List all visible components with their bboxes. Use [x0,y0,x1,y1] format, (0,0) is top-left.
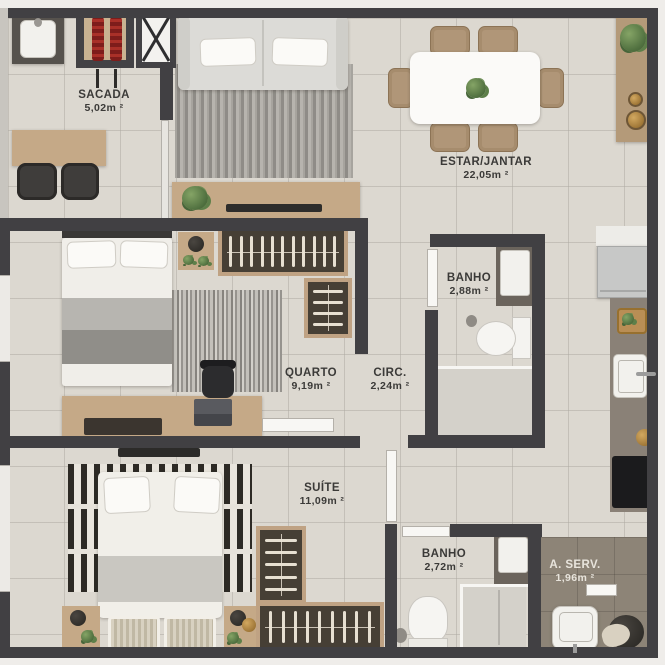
grill-skewers-icon [110,17,122,61]
room-area: 9,19m ² [292,380,331,393]
wall-top [8,8,658,18]
suite-blanket [98,556,222,602]
balcony-chair [61,163,99,200]
wall-living-quarto [8,218,368,231]
banho1-shower-glass [438,366,532,369]
desk-chair [202,366,234,398]
sofa-cushion [200,37,257,67]
window-quarto [0,275,10,362]
room-label-circ: CIRC. 2,24m ² [371,366,410,394]
room-label-sacada: SACADA 5,02m ² [78,88,130,116]
room-label-quarto: QUARTO 9,19m ² [285,366,337,394]
suite-tv-icon [118,448,200,457]
room-area: 22,05m ² [463,169,508,182]
sofa-seat-line [262,20,264,86]
room-area: 2,24m ² [371,380,410,393]
banho1-bin-icon [466,315,477,327]
tv-icon [226,204,322,212]
grill-handle-icon [96,69,99,88]
sliding-door-sacada [161,120,169,222]
suite-pillow [173,476,221,514]
wall-quarto-suite [8,436,360,448]
sofa-arm [336,16,348,90]
quarto-wardrobe [218,227,348,276]
banho2-shower-rod-icon [498,590,500,645]
duct-shaft [136,10,176,68]
grill-handle-icon [114,69,117,88]
suite-wardrobe-horizontal [256,602,384,652]
quarto-pillow [67,240,117,269]
room-name: BANHO [422,547,466,561]
door-banho1 [427,249,438,307]
quarto-pillow [120,240,169,269]
shower-floor-banho2 [463,586,526,647]
decor-bowl-icon [628,92,643,107]
balcony-faucet-icon [34,18,42,27]
wall-banho1-bottom [408,435,545,448]
banho2-shower-glass [460,584,463,648]
room-label-banho-1: BANHO 2,88m ² [447,271,491,299]
banho1-sink [500,250,530,296]
wall-circ-right [425,310,438,436]
wall-suite-banho2 [385,524,397,647]
wall-banho1-right [532,247,545,437]
wall-banho1-top [430,234,545,247]
room-name: SACADA [78,88,130,102]
suite-plant-icon [227,632,239,644]
wall-banho2-aserv [528,524,541,647]
room-label-banho-2: BANHO 2,72m ² [422,547,466,575]
wall-circ-left [355,218,368,354]
door-aserv [586,584,617,596]
sideboard-plant-icon [620,24,646,52]
room-area: 2,72m ² [424,561,463,574]
nightstand-plant-icon [183,255,194,265]
room-name: SUÍTE [304,481,340,495]
sofa-arm [178,16,190,90]
balcony-railing [0,8,8,218]
kitchen-sink-basin [618,360,644,393]
balcony-chair [17,163,57,200]
quarto-blanket-fold [62,330,172,364]
laundry-tank-basin [559,612,593,642]
shaft-x-icon [142,16,170,62]
wall-sacada-living [160,62,173,120]
room-area: 2,88m ² [449,285,488,298]
room-name: BANHO [447,271,491,285]
room-label-estar-jantar: ESTAR/JANTAR 22,05m ² [440,155,532,183]
grill-skewers-icon [92,17,104,61]
suite-bench [108,616,160,650]
wall-bottom [8,647,658,658]
decor-bowl-icon [626,110,646,130]
nightstand-plant-icon [198,256,209,266]
suite-plant-icon [81,630,94,643]
console-plant-icon [182,186,208,210]
banho1-toilet-bowl [476,321,516,356]
barbecue-grill [76,10,134,68]
kitchen-upper-cabinet [596,226,648,247]
herbs-icon [622,313,634,325]
table-centerpiece-icon [466,78,486,98]
laptop-icon [194,399,232,426]
quarto-side-closet [304,278,352,338]
balcony-table [12,130,106,166]
suite-wardrobe-vertical [256,526,306,604]
banho2-toilet-bowl [408,596,448,642]
suite-decor-icon [242,618,256,632]
banho2-sink [498,537,528,573]
door-suite [386,450,397,522]
banho2-shower-glass [460,584,530,587]
shower-floor-banho1 [438,368,532,435]
laundry-tap-icon [573,644,577,653]
floor-plan: SACADA 5,02m ² ESTAR/JANTAR 22,05m ² BAN… [0,0,665,665]
room-name: QUARTO [285,366,337,380]
dining-chair [430,122,470,152]
room-label-a-serv: A. SERV. 1,96m ² [549,558,600,586]
room-label-suite: SUÍTE 11,09m ² [300,481,345,509]
faucet-icon [636,372,656,376]
door-banho2 [402,526,450,537]
dining-chair [478,122,518,152]
suite-lamp-icon [70,610,86,626]
room-name: CIRC. [373,366,406,380]
room-area: 11,09m ² [300,495,345,508]
wall-right [647,8,658,658]
room-name: A. SERV. [549,558,600,572]
room-area: 1,96m ² [556,572,595,585]
desk-tray-icon [84,418,162,435]
nightstand-decor-icon [188,236,204,252]
room-name: ESTAR/JANTAR [440,155,532,169]
dining-chair [538,68,564,108]
cooktop [612,456,650,508]
suite-bench [164,616,216,650]
suite-pillow [103,476,151,514]
sofa-cushion [272,37,329,67]
window-suite [0,465,10,592]
fridge-door-line [600,290,646,292]
room-area: 5,02m ² [84,102,123,115]
door-quarto [262,418,334,432]
